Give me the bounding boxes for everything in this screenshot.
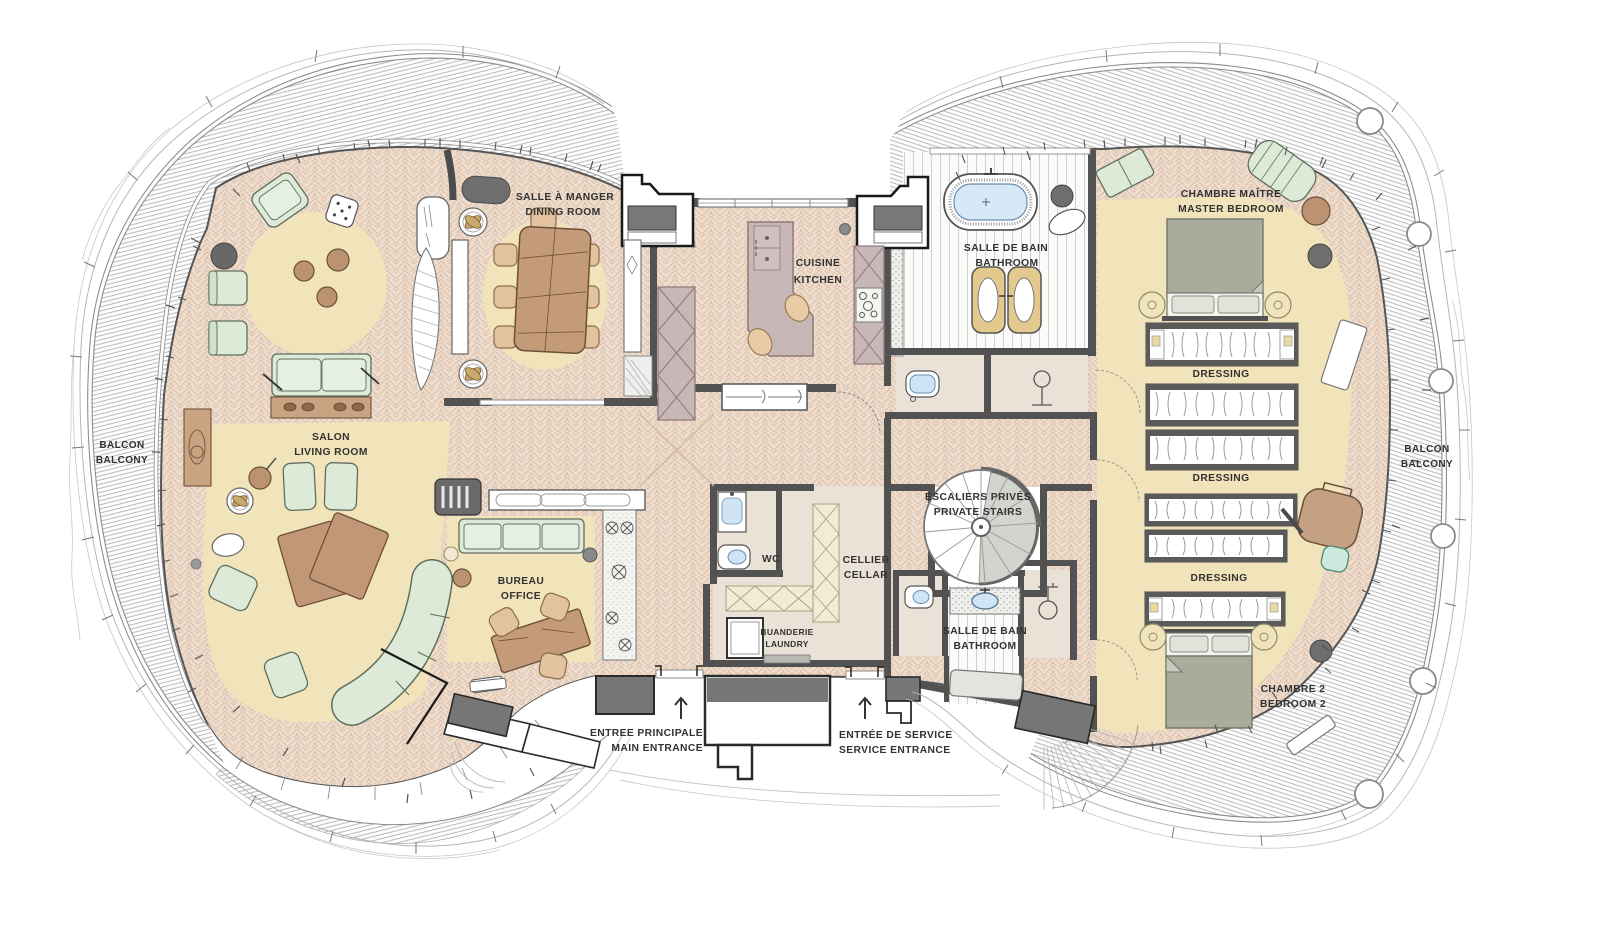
svg-text:MAIN ENTRANCE: MAIN ENTRANCE — [611, 743, 703, 754]
svg-text:ENTRÉE DE SERVICE: ENTRÉE DE SERVICE — [839, 728, 953, 741]
svg-text:LIVING ROOM: LIVING ROOM — [294, 447, 368, 458]
svg-text:DRESSING: DRESSING — [1193, 369, 1250, 380]
svg-text:SALLE À MANGER: SALLE À MANGER — [516, 190, 614, 203]
svg-text:SALLE DE BAIN: SALLE DE BAIN — [964, 243, 1048, 254]
svg-text:BATHROOM: BATHROOM — [975, 258, 1038, 269]
svg-text:CUISINE: CUISINE — [796, 258, 841, 269]
svg-text:BEDROOM 2: BEDROOM 2 — [1260, 699, 1326, 710]
svg-text:ESCALIERS PRIVÉS: ESCALIERS PRIVÉS — [925, 490, 1031, 503]
svg-text:BALCON: BALCON — [99, 440, 144, 451]
svg-text:CELLAR: CELLAR — [844, 570, 888, 581]
svg-text:BALCONY: BALCONY — [96, 455, 148, 466]
svg-text:BATHROOM: BATHROOM — [953, 641, 1016, 652]
svg-text:KITCHEN: KITCHEN — [794, 275, 843, 286]
svg-text:WC: WC — [762, 554, 780, 565]
svg-text:PRIVATE STAIRS: PRIVATE STAIRS — [934, 507, 1023, 518]
svg-text:CELLIER: CELLIER — [843, 555, 890, 566]
svg-text:OFFICE: OFFICE — [501, 591, 541, 602]
svg-text:LAUNDRY: LAUNDRY — [765, 639, 808, 649]
svg-text:SERVICE ENTRANCE: SERVICE ENTRANCE — [839, 745, 951, 756]
svg-text:BALCONY: BALCONY — [1401, 459, 1453, 470]
svg-text:BUANDERIE: BUANDERIE — [760, 627, 813, 637]
svg-text:DRESSING: DRESSING — [1191, 573, 1248, 584]
svg-text:DINING ROOM: DINING ROOM — [525, 207, 600, 218]
svg-text:SALON: SALON — [312, 432, 350, 443]
svg-text:BALCON: BALCON — [1404, 444, 1449, 455]
svg-text:DRESSING: DRESSING — [1193, 473, 1250, 484]
svg-text:CHAMBRE MAÎTRE: CHAMBRE MAÎTRE — [1181, 187, 1282, 200]
svg-text:CHAMBRE 2: CHAMBRE 2 — [1261, 684, 1326, 695]
svg-text:ENTREE PRINCIPALE: ENTREE PRINCIPALE — [590, 728, 703, 739]
svg-text:MASTER BEDROOM: MASTER BEDROOM — [1178, 204, 1284, 215]
svg-text:SALLE DE BAIN: SALLE DE BAIN — [943, 626, 1027, 637]
svg-text:BUREAU: BUREAU — [498, 576, 544, 587]
